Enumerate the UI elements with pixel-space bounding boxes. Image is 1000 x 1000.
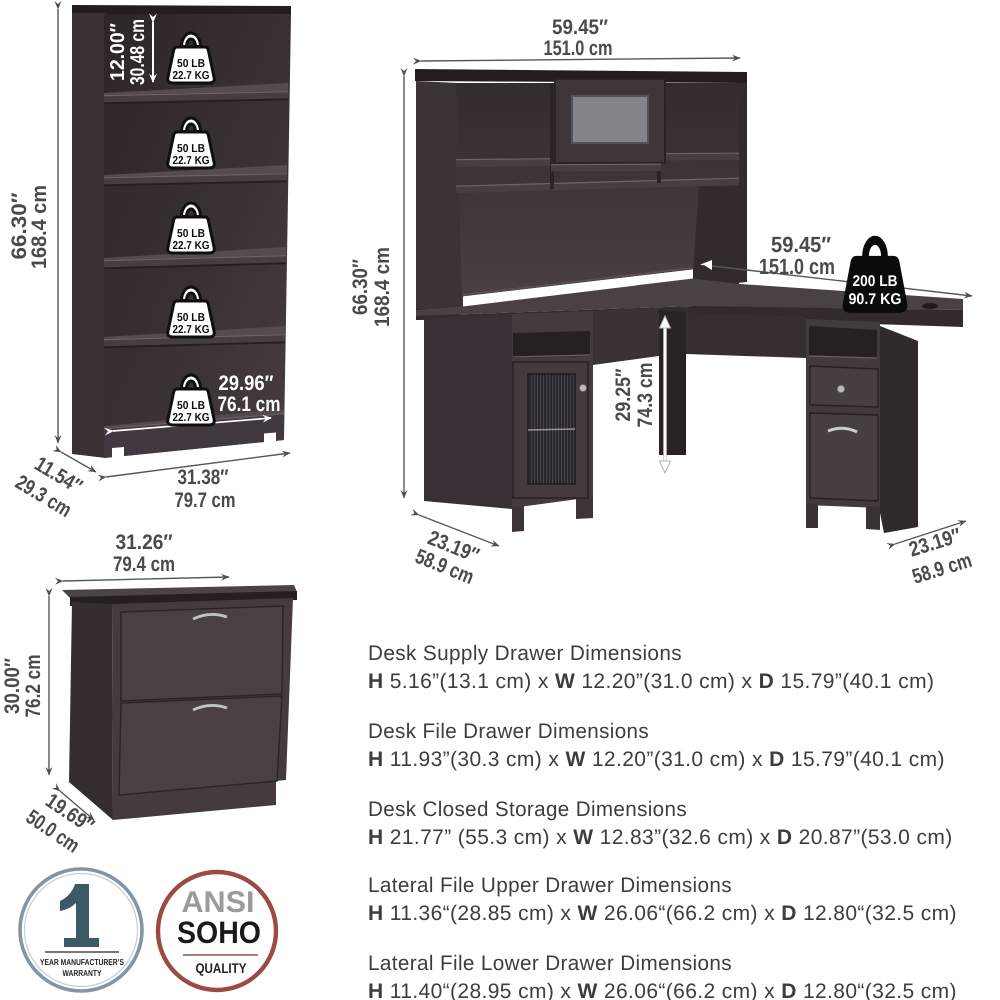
svg-text:WARRANTY: WARRANTY (63, 968, 102, 978)
svg-text:50 LB: 50 LB (177, 228, 205, 240)
svg-text:79.4 cm: 79.4 cm (113, 553, 175, 576)
svg-text:50 LB: 50 LB (177, 312, 205, 324)
svg-text:Desk Supply Drawer Dimensions: Desk Supply Drawer Dimensions (368, 642, 682, 665)
svg-text:66.30″: 66.30″ (349, 259, 372, 315)
svg-text:H 11.93”(30.3 cm) x W 12.20”(3: H 11.93”(30.3 cm) x W 12.20”(31.0 cm) x … (368, 748, 945, 771)
svg-text:50 LB: 50 LB (177, 58, 205, 70)
svg-text:30.48 cm: 30.48 cm (127, 19, 149, 85)
svg-text:168.4 cm: 168.4 cm (371, 247, 394, 327)
svg-text:151.0 cm: 151.0 cm (544, 37, 613, 60)
svg-text:SOHO: SOHO (177, 915, 261, 950)
svg-text:H 21.77” (55.3 cm) x W 12.83”: H 21.77” (55.3 cm) x W 12.83”(32.6 cm) x… (368, 826, 953, 849)
svg-text:76.2 cm: 76.2 cm (22, 655, 45, 718)
svg-text:YEAR MANUFACTURER’S: YEAR MANUFACTURER’S (40, 957, 124, 967)
svg-text:H 11.40“(28.95 cm) x W 26.06“: H 11.40“(28.95 cm) x W 26.06“(66.2 cm) x… (368, 980, 957, 1000)
svg-text:31.38″: 31.38″ (178, 466, 229, 489)
svg-text:29.25″: 29.25″ (612, 369, 635, 422)
svg-text:200 LB: 200 LB (853, 273, 898, 290)
svg-text:Desk File Drawer Dimensions: Desk File Drawer Dimensions (368, 720, 649, 743)
svg-text:29.96″: 29.96″ (219, 372, 274, 395)
svg-text:50 LB: 50 LB (177, 143, 205, 155)
svg-text:Lateral File Lower Drawer Dime: Lateral File Lower Drawer Dimensions (368, 952, 732, 975)
svg-text:151.0 cm: 151.0 cm (759, 254, 835, 279)
svg-text:76.1 cm: 76.1 cm (218, 393, 281, 416)
svg-text:Desk Closed Storage Dimensions: Desk Closed Storage Dimensions (368, 798, 687, 821)
svg-text:22.7 KG: 22.7 KG (173, 70, 210, 82)
svg-text:90.7 KG: 90.7 KG (849, 291, 902, 308)
svg-text:12.00″: 12.00″ (107, 23, 129, 81)
svg-text:30.00″: 30.00″ (1, 658, 24, 714)
svg-text:H 11.36“(28.85 cm) x W 26.06“: H 11.36“(28.85 cm) x W 26.06“(66.2 cm) x… (368, 902, 957, 925)
svg-text:168.4 cm: 168.4 cm (28, 185, 51, 269)
svg-text:50 LB: 50 LB (177, 400, 205, 412)
svg-text:74.3 cm: 74.3 cm (634, 363, 657, 428)
svg-text:79.7 cm: 79.7 cm (175, 489, 236, 512)
svg-text:22.7 KG: 22.7 KG (173, 412, 210, 424)
svg-text:31.26″: 31.26″ (116, 531, 173, 554)
svg-text:59.45″: 59.45″ (552, 16, 608, 39)
svg-text:Lateral File Upper Drawer Dime: Lateral File Upper Drawer Dimensions (368, 874, 732, 897)
svg-text:H 5.16”(13.1 cm) x W 12.20”(31: H 5.16”(13.1 cm) x W 12.20”(31.0 cm) x D… (368, 670, 934, 693)
svg-text:22.7 KG: 22.7 KG (173, 155, 210, 167)
svg-text:QUALITY: QUALITY (196, 960, 248, 976)
svg-text:22.7 KG: 22.7 KG (173, 240, 210, 252)
svg-text:22.7 KG: 22.7 KG (173, 324, 210, 336)
